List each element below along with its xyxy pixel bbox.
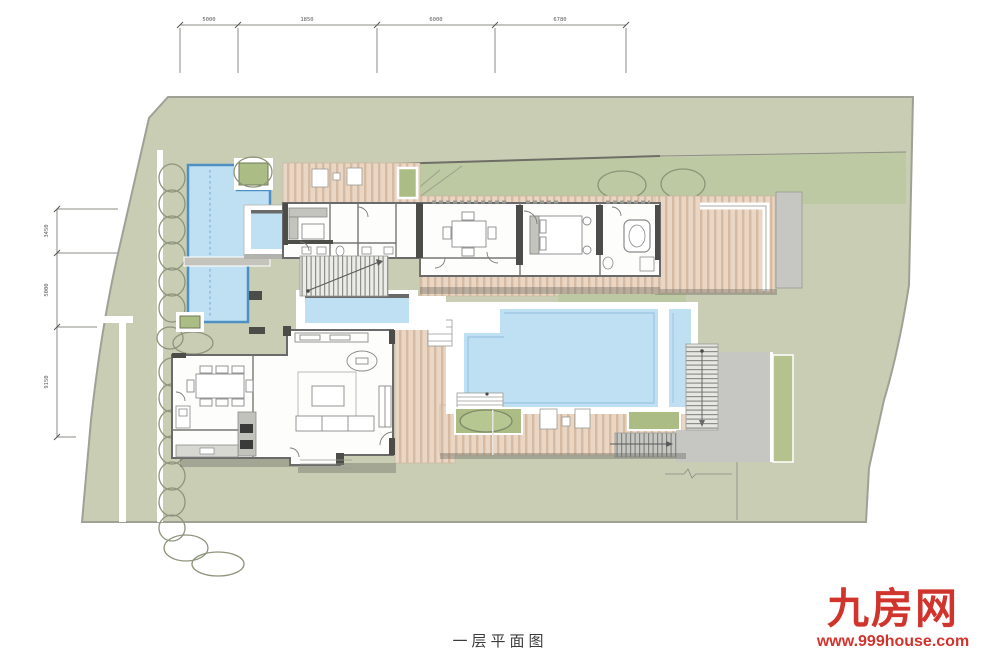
planter-north	[398, 168, 417, 198]
spa-planter	[455, 408, 522, 434]
dimension-chain-top	[177, 22, 629, 73]
dim-top-2: 1850	[300, 17, 313, 23]
planter-east	[628, 411, 680, 430]
pool-steps-north	[457, 392, 503, 409]
dim-left-3: 9150	[44, 375, 50, 388]
floor-plan-page: 5000 1850 6000 6780 3450 5000 9150	[0, 0, 1000, 667]
stairs-central	[300, 256, 388, 296]
dimension-labels-left: 3450 5000 9150	[44, 224, 50, 388]
bathtub	[624, 220, 650, 252]
toilet-2	[603, 257, 613, 269]
deck-right	[655, 196, 775, 293]
logo-brand-text: 九房网	[798, 588, 988, 630]
toilet	[336, 246, 344, 256]
bed	[530, 216, 591, 254]
dimension-labels-top: 5000 1850 6000 6780	[202, 17, 566, 23]
logo-url[interactable]: www.999house.com	[798, 634, 988, 650]
pool-planter-south	[176, 312, 204, 332]
sideboard	[176, 406, 190, 428]
floor-plan-drawing: 5000 1850 6000 6780 3450 5000 9150	[0, 0, 1000, 667]
pool-planter-north	[234, 157, 273, 190]
dim-left-1: 3450	[44, 224, 50, 237]
watermark-logo: 九房网 www.999house.com	[798, 588, 988, 650]
dim-left-2: 5000	[44, 283, 50, 296]
dim-top-1: 5000	[202, 17, 215, 23]
dim-top-4: 6780	[553, 17, 566, 23]
stairs-east	[686, 344, 718, 430]
dim-top-3: 6000	[429, 17, 442, 23]
